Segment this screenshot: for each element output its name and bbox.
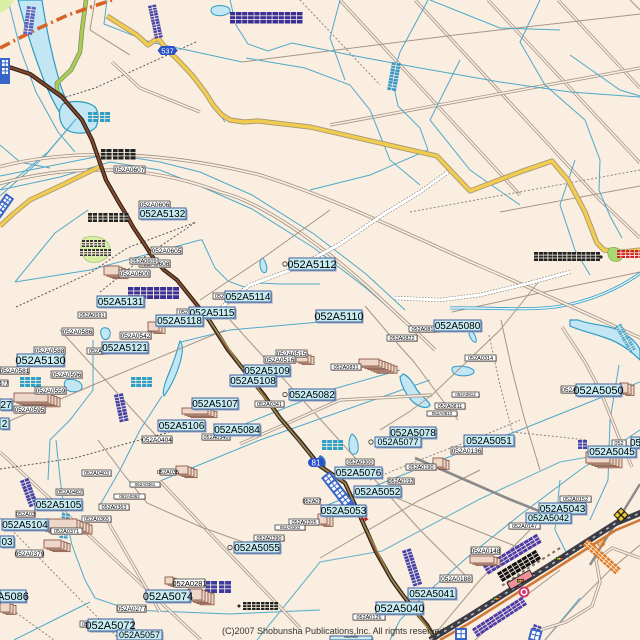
svg-text:052A0822: 052A0822 bbox=[389, 336, 414, 342]
svg-text:052A5077: 052A5077 bbox=[377, 437, 418, 447]
svg-text:052A0596: 052A0596 bbox=[52, 372, 82, 379]
svg-text:052A0516: 052A0516 bbox=[265, 357, 295, 364]
svg-text:052A0314: 052A0314 bbox=[468, 356, 493, 362]
svg-text:052A0202: 052A0202 bbox=[280, 525, 301, 530]
svg-text:052A0542: 052A0542 bbox=[121, 333, 151, 340]
svg-text:052A035: 052A035 bbox=[157, 470, 179, 476]
svg-text:052A5080: 052A5080 bbox=[435, 321, 481, 332]
svg-text:052A0190: 052A0190 bbox=[408, 465, 433, 471]
svg-text:052A0341: 052A0341 bbox=[257, 402, 282, 408]
svg-text:052A5104: 052A5104 bbox=[2, 520, 48, 531]
svg-text:03: 03 bbox=[1, 537, 13, 548]
svg-text:052A5050: 052A5050 bbox=[573, 385, 623, 397]
svg-text:052A03: 052A03 bbox=[16, 512, 35, 518]
svg-text:A5086: A5086 bbox=[0, 591, 29, 603]
svg-text:052A0586: 052A0586 bbox=[63, 329, 93, 336]
svg-text:052A5057: 052A5057 bbox=[119, 630, 160, 640]
svg-text:052A0559: 052A0559 bbox=[36, 388, 66, 395]
svg-text:052A0831: 052A0831 bbox=[333, 365, 358, 371]
svg-text:052A0277: 052A0277 bbox=[117, 606, 147, 613]
svg-text:052A0147: 052A0147 bbox=[512, 524, 537, 530]
svg-text:052A5076: 052A5076 bbox=[336, 468, 382, 479]
svg-text:537: 537 bbox=[161, 47, 174, 56]
svg-text:052A0148: 052A0148 bbox=[471, 548, 501, 555]
svg-text:052A0379: 052A0379 bbox=[15, 551, 45, 558]
svg-text:052A0192: 052A0192 bbox=[388, 479, 413, 485]
svg-text:052A5105: 052A5105 bbox=[36, 500, 82, 511]
svg-text:052A5106: 052A5106 bbox=[159, 421, 205, 432]
svg-text:052A5118: 052A5118 bbox=[157, 316, 202, 327]
svg-text:052A5041: 052A5041 bbox=[409, 589, 455, 600]
svg-text:(C)2007 Shobunsha Publications: (C)2007 Shobunsha Publications,Inc. All … bbox=[222, 626, 447, 636]
svg-text:052A0817: 052A0817 bbox=[411, 327, 436, 333]
svg-text:052A5107: 052A5107 bbox=[192, 399, 238, 410]
svg-text:052A5110: 052A5110 bbox=[314, 311, 363, 323]
svg-text:052A07: 052A07 bbox=[303, 499, 322, 505]
svg-text:052A5112: 052A5112 bbox=[287, 259, 336, 271]
svg-text:052A5084: 052A5084 bbox=[214, 425, 260, 436]
svg-text:2: 2 bbox=[2, 419, 8, 430]
svg-text:577: 577 bbox=[0, 381, 9, 387]
svg-text:052A5052: 052A5052 bbox=[355, 487, 401, 498]
svg-text:052A0591: 052A0591 bbox=[79, 313, 104, 319]
svg-text:052A0188: 052A0188 bbox=[441, 576, 471, 583]
svg-text:052A5114: 052A5114 bbox=[226, 292, 271, 303]
svg-text:052A0609: 052A0609 bbox=[131, 259, 156, 265]
svg-text:052A5082: 052A5082 bbox=[289, 390, 335, 401]
svg-text:052A0300: 052A0300 bbox=[347, 460, 372, 466]
svg-text:052A0595: 052A0595 bbox=[15, 407, 45, 414]
svg-text:052A0361: 052A0361 bbox=[135, 482, 156, 487]
svg-text:052A0812: 052A0812 bbox=[455, 392, 476, 397]
svg-text:052A0281: 052A0281 bbox=[172, 579, 206, 588]
svg-text:052: 052 bbox=[215, 294, 224, 300]
svg-text:052A5051: 052A5051 bbox=[466, 436, 512, 447]
svg-text:052A0810: 052A0810 bbox=[432, 411, 453, 416]
svg-text:052A5130: 052A5130 bbox=[15, 355, 65, 367]
svg-text:052A0403: 052A0403 bbox=[84, 471, 109, 477]
svg-text:052A0404: 052A0404 bbox=[142, 437, 172, 444]
svg-text:81: 81 bbox=[312, 459, 321, 468]
svg-text:052A5121: 052A5121 bbox=[102, 343, 148, 354]
svg-text:052A5040: 052A5040 bbox=[374, 603, 424, 615]
svg-text:052A0290: 052A0290 bbox=[256, 536, 281, 542]
svg-text:052A0482: 052A0482 bbox=[57, 490, 82, 496]
svg-text:052A0126: 052A0126 bbox=[356, 615, 381, 621]
svg-text:052A5074: 052A5074 bbox=[143, 591, 193, 603]
svg-text:052A0607: 052A0607 bbox=[115, 167, 145, 174]
svg-text:052A0581: 052A0581 bbox=[0, 368, 30, 375]
svg-text:052A0371: 052A0371 bbox=[54, 529, 79, 535]
svg-text:052A0811: 052A0811 bbox=[438, 404, 463, 410]
svg-text:052A0605: 052A0605 bbox=[152, 248, 182, 255]
svg-text:052A5042: 052A5042 bbox=[528, 513, 569, 523]
svg-text:27: 27 bbox=[0, 400, 12, 411]
svg-text:052A5108: 052A5108 bbox=[230, 376, 276, 387]
svg-text:052A0365: 052A0365 bbox=[84, 517, 109, 523]
svg-text:052A0152: 052A0152 bbox=[563, 497, 588, 503]
svg-text:052A5045: 052A5045 bbox=[589, 447, 635, 458]
svg-text:052A5131: 052A5131 bbox=[98, 297, 144, 308]
svg-text:052A5055: 052A5055 bbox=[234, 543, 280, 554]
svg-text:052A0362: 052A0362 bbox=[119, 494, 140, 499]
svg-text:052A5132: 052A5132 bbox=[140, 209, 186, 220]
svg-text:052A5053: 052A5053 bbox=[321, 506, 367, 517]
svg-text:052A0600: 052A0600 bbox=[120, 271, 150, 278]
svg-text:05: 05 bbox=[630, 438, 640, 449]
svg-text:052A0363: 052A0363 bbox=[101, 505, 126, 511]
svg-text:052A0136: 052A0136 bbox=[452, 448, 482, 455]
